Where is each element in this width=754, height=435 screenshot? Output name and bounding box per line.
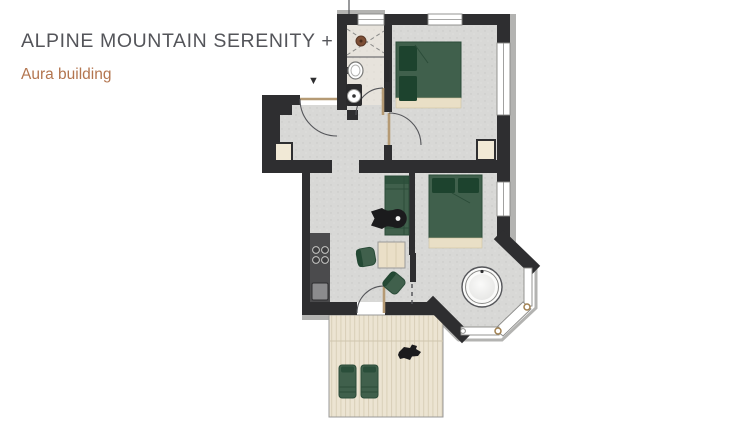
wall: [302, 173, 310, 315]
glass-joint: [524, 304, 530, 310]
glass-joint: [461, 329, 466, 334]
armchair-body: [371, 208, 407, 229]
burner: [322, 257, 329, 264]
bed-pillow: [399, 46, 417, 71]
floorplan-svg: [0, 0, 754, 435]
sink-icon: [347, 62, 363, 79]
kitchen-sink: [312, 283, 328, 300]
burner: [313, 247, 320, 254]
lounger-headrest: [341, 367, 354, 373]
table-top: [378, 242, 405, 268]
double-bed-icon: [429, 175, 482, 248]
sliding-door-leaf: [410, 253, 416, 282]
armchair-dot: [396, 216, 401, 221]
terrace: [329, 315, 443, 417]
lounger-icon: [339, 365, 356, 398]
wall: [337, 25, 347, 110]
toilet-icon: [346, 84, 362, 106]
hot-tub-water: [469, 274, 495, 300]
bay-glass: [461, 327, 499, 335]
divider-wall: [409, 173, 415, 255]
bay-glass: [524, 268, 532, 306]
wardrobe: [275, 143, 292, 161]
armchair-icon: [371, 208, 407, 229]
exterior-strip: [510, 14, 516, 242]
sofa-back: [385, 176, 409, 184]
exterior-strip: [337, 10, 385, 14]
glass-joint: [495, 328, 501, 334]
bed-footer: [429, 238, 482, 248]
wall: [302, 302, 357, 315]
hot-tub-valve: [480, 270, 483, 273]
opening-floor: [332, 160, 359, 173]
bed-pillow: [458, 178, 479, 193]
shower-drain-dot: [360, 40, 363, 43]
kitchen: [310, 233, 330, 302]
double-bed-icon: [396, 42, 461, 108]
towel-rail-icon: [385, 60, 390, 82]
dining-table-icon: [378, 242, 405, 268]
wall: [274, 115, 280, 144]
toilet-dot: [352, 94, 356, 98]
wardrobe: [477, 140, 495, 160]
burner: [313, 257, 320, 264]
bed-pillow: [432, 178, 455, 193]
wall: [417, 160, 510, 173]
chair-icon: [356, 247, 377, 268]
wall: [262, 160, 332, 173]
burner: [322, 247, 329, 254]
wall: [384, 145, 392, 173]
floorplan-page: ALPINE MOUNTAIN SERENITY + Aura building…: [0, 0, 754, 435]
bed-pillow: [399, 76, 417, 101]
lounger-icon: [361, 365, 378, 398]
hot-tub-icon: [462, 267, 502, 307]
lounger-headrest: [363, 367, 376, 373]
